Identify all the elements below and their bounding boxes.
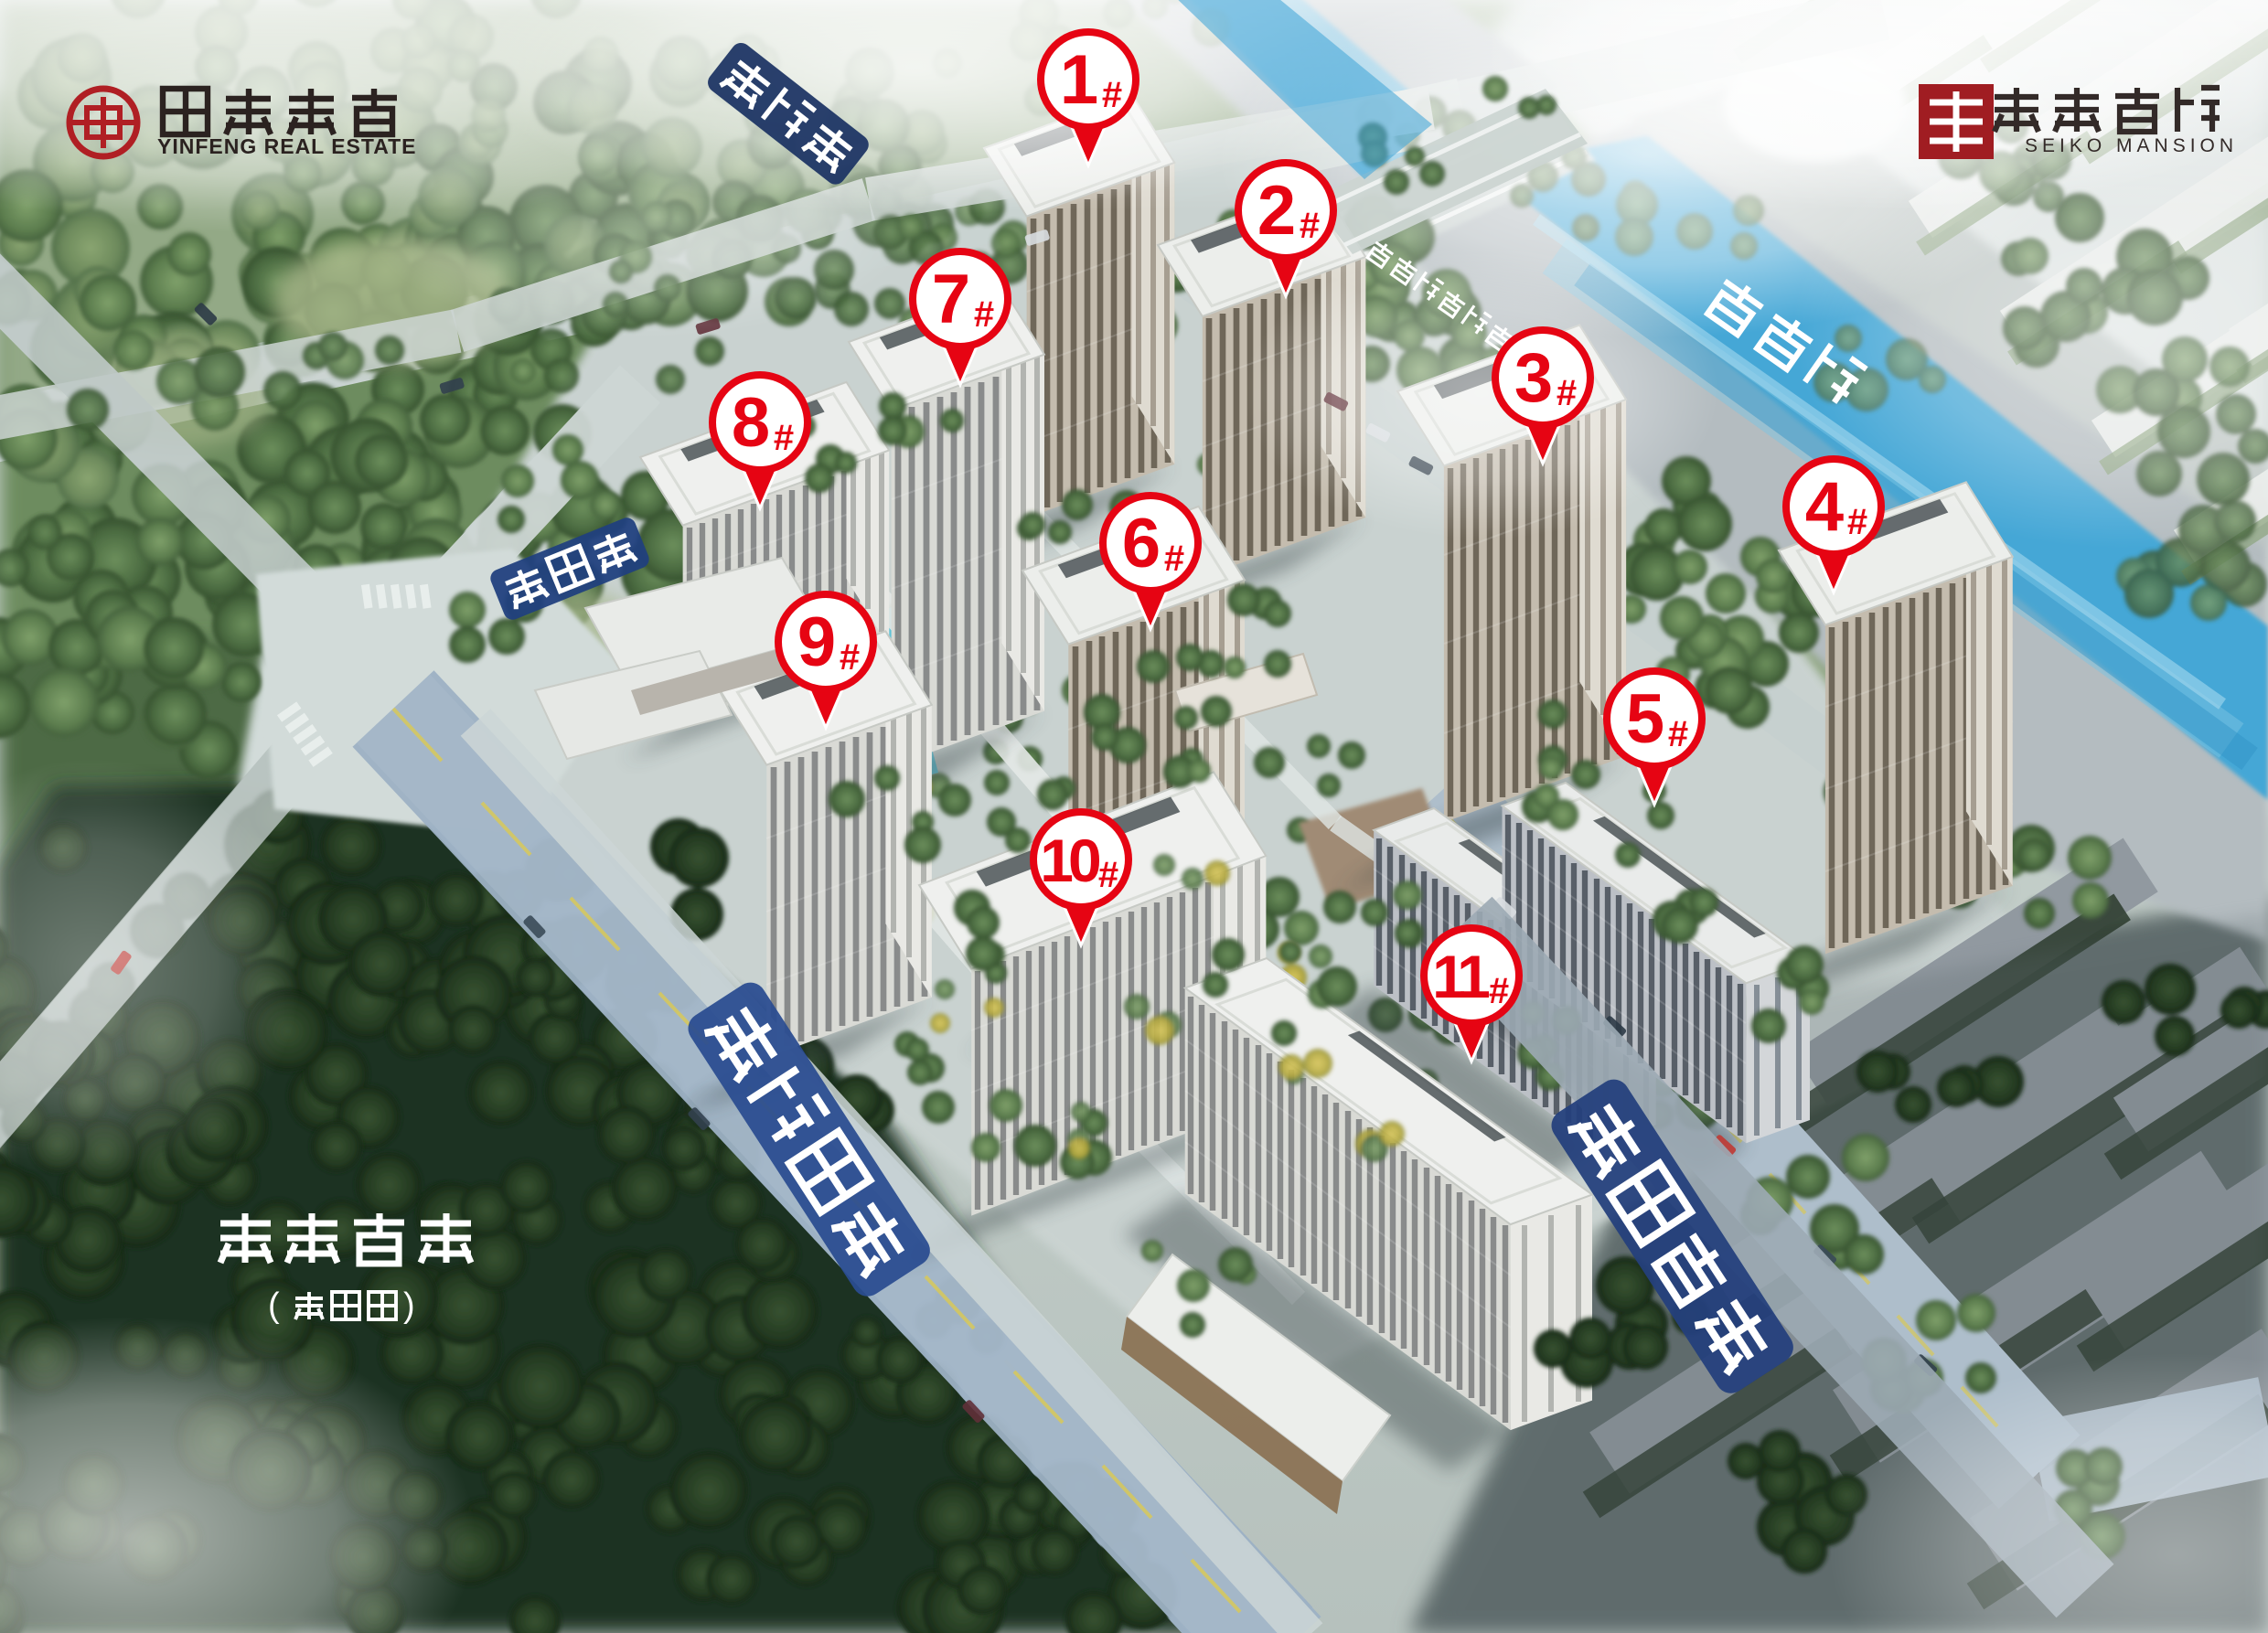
svg-text:#: # bbox=[840, 637, 860, 678]
svg-text:SEIKO MANSION: SEIKO MANSION bbox=[2025, 135, 2238, 156]
svg-text:4: 4 bbox=[1805, 468, 1844, 546]
svg-text:#: # bbox=[1300, 206, 1320, 246]
svg-text:1: 1 bbox=[1060, 41, 1098, 119]
svg-text:#: # bbox=[1847, 502, 1867, 542]
svg-text:(: ( bbox=[268, 1286, 280, 1325]
svg-text:#: # bbox=[1164, 539, 1184, 579]
svg-text:#: # bbox=[1098, 855, 1118, 895]
svg-text:10: 10 bbox=[1040, 827, 1099, 894]
svg-text:8: 8 bbox=[732, 384, 770, 462]
svg-text:3: 3 bbox=[1514, 339, 1553, 417]
svg-text:#: # bbox=[974, 294, 994, 335]
svg-text:): ) bbox=[403, 1286, 415, 1325]
svg-text:6: 6 bbox=[1122, 505, 1161, 582]
svg-text:#: # bbox=[1489, 971, 1509, 1011]
svg-text:#: # bbox=[1557, 373, 1577, 413]
svg-text:#: # bbox=[774, 418, 794, 458]
svg-text:5: 5 bbox=[1626, 680, 1664, 758]
svg-text:2: 2 bbox=[1257, 172, 1296, 250]
svg-text:#: # bbox=[1102, 75, 1122, 115]
svg-text:9: 9 bbox=[797, 603, 836, 681]
svg-text:11: 11 bbox=[1432, 943, 1489, 1010]
svg-text:7: 7 bbox=[932, 261, 970, 338]
svg-text:YINFENG REAL ESTATE: YINFENG REAL ESTATE bbox=[157, 134, 417, 158]
svg-text:#: # bbox=[1668, 714, 1688, 754]
